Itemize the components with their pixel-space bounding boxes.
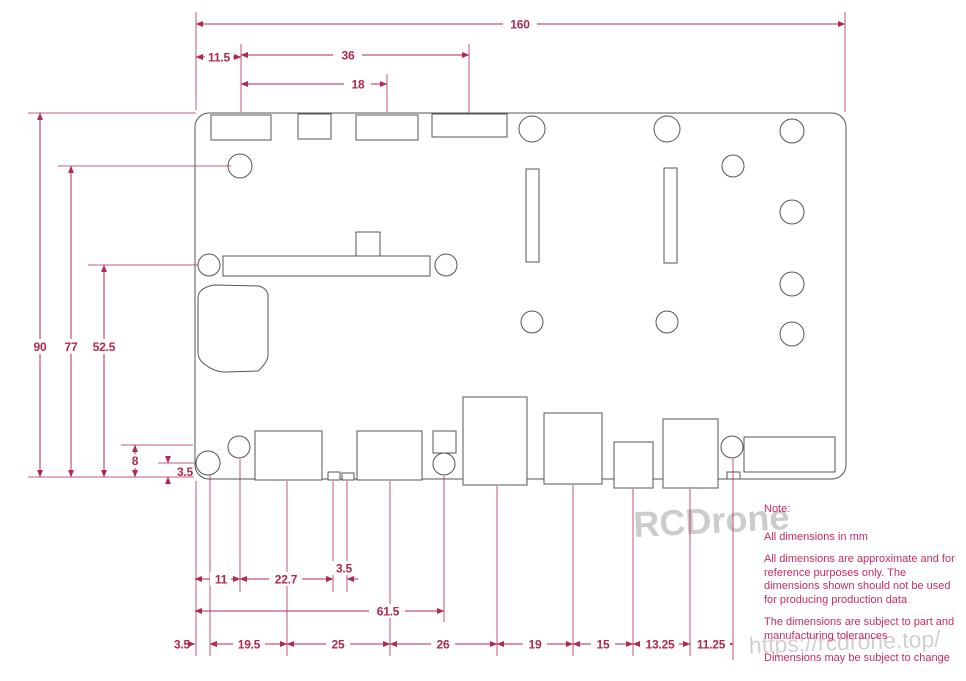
bottom-connector <box>544 413 602 484</box>
dim-label-19: 19 <box>529 638 542 652</box>
top-connector <box>211 115 271 140</box>
dim-label-25: 25 <box>332 638 345 652</box>
mounting-hole <box>196 451 220 475</box>
bottom-connector <box>463 397 527 485</box>
note-line: Dimensions may be subject to change <box>764 652 962 666</box>
dim-label-11-5: 11.5 <box>208 51 230 65</box>
component <box>356 232 380 256</box>
mounting-hole <box>519 116 545 142</box>
top-connector <box>298 114 331 139</box>
dim-label-11-25: 11.25 <box>697 638 726 652</box>
small-pad <box>328 472 340 480</box>
dim-label-11: 11 <box>215 573 228 587</box>
slot <box>526 169 539 262</box>
top-edge-connectors <box>211 114 507 140</box>
notes-heading: Note: <box>764 503 962 517</box>
mounting-hole <box>721 436 743 458</box>
dim-label-18: 18 <box>352 78 365 92</box>
dim-label-160: 160 <box>510 18 530 32</box>
top-connector <box>356 115 418 140</box>
bottom-connector <box>614 442 653 488</box>
dim-label-8: 8 <box>132 454 139 468</box>
slot <box>664 168 677 263</box>
dim-label-19-5: 19.5 <box>238 638 261 652</box>
small-pad <box>342 473 354 480</box>
mounting-hole <box>656 311 678 333</box>
notes-block: Note: All dimensions in mm All dimension… <box>764 503 962 675</box>
bottom-connector <box>255 431 322 480</box>
dim-label-3-5-mid: 3.5 <box>336 562 353 576</box>
dimension-drawing-page: RCDrone https://rcdrone.top/ RCDrone htt… <box>0 0 966 681</box>
mounting-hole <box>228 154 252 178</box>
dim-label-22-7: 22.7 <box>275 573 298 587</box>
dim-label-77: 77 <box>65 340 78 354</box>
dim-label-52-5: 52.5 <box>93 340 116 354</box>
mounting-hole <box>433 453 455 475</box>
note-line: All dimensions are approximate and for r… <box>764 553 962 607</box>
bottom-connector <box>357 431 422 480</box>
polygon-component <box>198 285 268 372</box>
top-connector <box>432 114 507 137</box>
dim-label-36: 36 <box>342 49 355 63</box>
mounting-hole <box>722 155 744 177</box>
mounting-hole <box>435 254 457 276</box>
dim-label-15: 15 <box>597 638 610 652</box>
bottom-connector <box>663 419 718 488</box>
dim-label-26: 26 <box>437 638 450 652</box>
note-line: All dimensions in mm <box>764 531 962 545</box>
mounting-hole <box>228 436 250 458</box>
mounting-hole <box>521 311 543 333</box>
header-connector <box>223 256 430 276</box>
mounting-hole <box>654 116 680 142</box>
note-line: The dimensions are subject to part and m… <box>764 616 962 643</box>
dim-label-3-5-bottom: 3.5 <box>174 638 191 652</box>
dim-label-3-5-left: 3.5 <box>177 465 194 479</box>
dim-label-13-25: 13.25 <box>645 638 675 652</box>
mounting-hole <box>198 254 220 276</box>
small-pad <box>727 472 740 479</box>
dim-label-90: 90 <box>34 340 47 354</box>
mounting-hole <box>780 200 804 224</box>
mounting-hole <box>780 322 804 346</box>
component <box>433 431 456 453</box>
bottom-connector <box>744 437 835 472</box>
mounting-hole <box>780 119 804 143</box>
dim-label-61-5: 61.5 <box>377 605 400 619</box>
mounting-hole <box>780 272 804 296</box>
